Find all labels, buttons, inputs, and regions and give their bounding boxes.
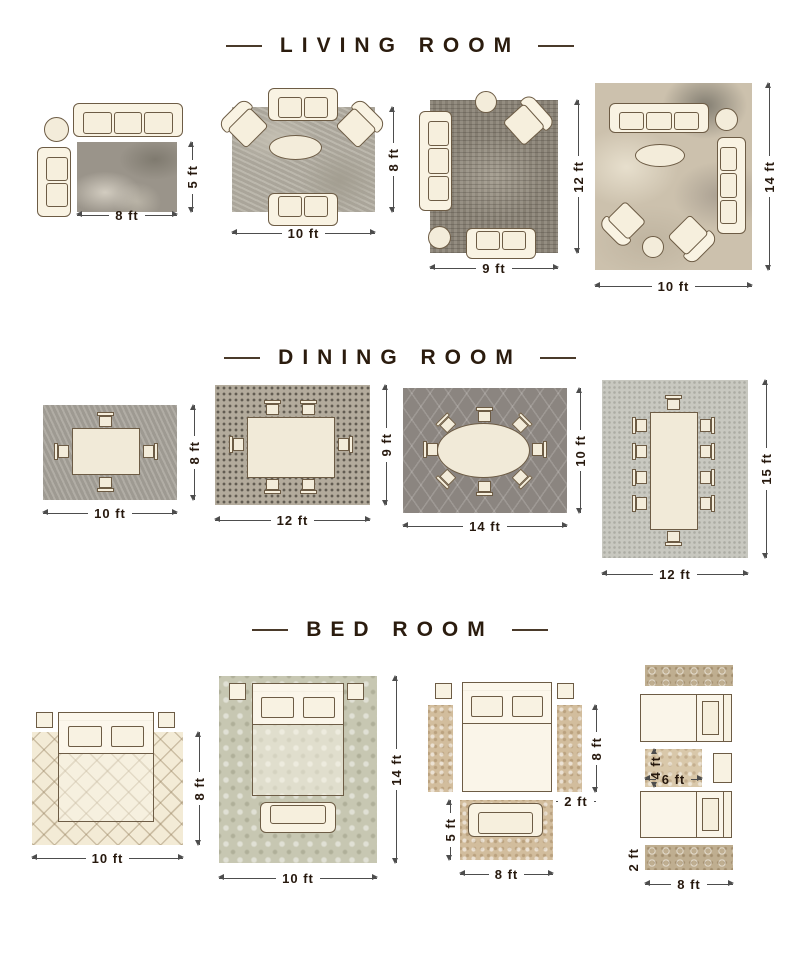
- dining-layout-14x10: 14 ft 10 ft: [400, 385, 582, 533]
- height-dimension: 14 ft: [388, 676, 404, 863]
- foot-rug-height-label: 5 ft: [443, 813, 458, 847]
- round-side-table: [428, 226, 451, 249]
- runner-height-dimension: 2 ft: [625, 843, 641, 872]
- width-dimension: 10 ft: [232, 225, 375, 241]
- bed-side-label: 8 ft: [589, 732, 604, 766]
- section-title-living-room: LIVING ROOM: [0, 34, 800, 58]
- width-dimension: 10 ft: [43, 505, 177, 521]
- mid-rug-width-label: 6 ft: [656, 772, 692, 787]
- dining-chair: [143, 443, 158, 460]
- section-title-dining-room: DINING ROOM: [0, 346, 800, 370]
- living-layout-9x12: 9 ft 12 ft: [418, 88, 586, 288]
- sofa: [609, 103, 709, 133]
- dining-table: [650, 412, 698, 530]
- loveseat: [37, 147, 71, 217]
- dining-layout-12x9: 12 ft 9 ft: [215, 383, 387, 531]
- foot-rug-width-label: 8 ft: [489, 867, 525, 882]
- dining-table: [247, 417, 335, 478]
- width-label: 12 ft: [271, 513, 315, 528]
- height-dimension: 9 ft: [378, 385, 394, 505]
- dining-table: [72, 428, 140, 475]
- dining-layout-10x8: 10 ft 8 ft: [40, 398, 198, 520]
- dining-chair: [300, 400, 317, 415]
- title-dash-right: [540, 357, 576, 359]
- oval-coffee-table: [635, 144, 685, 167]
- section-title-text: LIVING ROOM: [280, 34, 520, 58]
- dining-chair: [665, 395, 682, 410]
- height-label: 15 ft: [759, 448, 774, 490]
- width-label: 10 ft: [276, 871, 320, 886]
- width-label: 10 ft: [652, 279, 696, 294]
- height-label: 14 ft: [389, 749, 404, 791]
- bed-layout-twin-beds: 4 ft 6 ft 2 ft 8 ft: [625, 660, 800, 895]
- dining-layout-12x15: 12 ft 15 ft: [598, 378, 776, 590]
- height-dimension: 14 ft: [761, 83, 777, 270]
- foot-rug-height-dimension: 5 ft: [442, 800, 458, 860]
- foot-rug-width-dimension: 8 ft: [460, 866, 553, 882]
- living-layout-8x5: 8 ft 5 ft: [28, 95, 208, 237]
- dining-chair: [264, 400, 281, 415]
- width-dimension: 14 ft: [403, 518, 567, 534]
- dining-chair: [632, 469, 647, 486]
- dining-chair: [632, 495, 647, 512]
- bed: [252, 683, 344, 796]
- runner-width-label: 8 ft: [671, 877, 707, 892]
- rug-size-guide: LIVING ROOM 8 ft 5 ft 10 ft: [0, 0, 800, 978]
- width-dimension: 12 ft: [602, 566, 748, 582]
- oval-dining-table: [437, 423, 530, 478]
- width-dimension: 12 ft: [215, 512, 370, 528]
- round-side-table: [475, 91, 497, 113]
- dining-chair: [423, 441, 438, 458]
- runner-rug: [557, 705, 582, 792]
- nightstand: [713, 753, 732, 783]
- dining-chair: [264, 479, 281, 494]
- title-dash-right: [538, 45, 574, 47]
- height-label: 9 ft: [379, 428, 394, 462]
- section-title-text: BED ROOM: [306, 618, 494, 642]
- dining-chair: [97, 477, 114, 492]
- twin-bed: [640, 791, 732, 838]
- dining-chair: [97, 412, 114, 427]
- sofa: [419, 111, 452, 211]
- nightstand: [435, 683, 452, 699]
- width-dimension: 10 ft: [219, 870, 377, 886]
- dining-chair: [632, 443, 647, 460]
- title-dash-right: [512, 629, 548, 631]
- bed: [58, 712, 154, 822]
- dining-chair: [700, 443, 715, 460]
- runner-height-label: 2 ft: [626, 843, 641, 877]
- dining-chair: [700, 417, 715, 434]
- width-label: 10 ft: [88, 506, 132, 521]
- dining-chair: [700, 495, 715, 512]
- width-label: 14 ft: [463, 519, 507, 534]
- living-layout-10x8: 10 ft 8 ft: [215, 85, 400, 247]
- runner-rug: [645, 845, 733, 870]
- title-dash-left: [252, 629, 288, 631]
- width-label: 8 ft: [109, 208, 145, 223]
- height-dimension: 8 ft: [385, 107, 401, 212]
- runner-width-label: 2 ft: [558, 794, 594, 809]
- runner-rug: [645, 665, 733, 686]
- dining-chair: [338, 436, 353, 453]
- dining-chair: [476, 407, 493, 422]
- sofa: [268, 88, 338, 121]
- nightstand: [158, 712, 175, 728]
- runner-rug: [428, 705, 453, 792]
- round-side-table: [715, 108, 738, 131]
- dining-chair: [300, 479, 317, 494]
- height-dimension: 8 ft: [191, 732, 207, 845]
- height-label: 8 ft: [187, 436, 202, 470]
- dining-chair: [665, 531, 682, 546]
- dining-chair: [229, 436, 244, 453]
- bed-side-dimension: 8 ft: [588, 705, 604, 792]
- runner-width-dimension: 2 ft: [556, 793, 596, 809]
- living-layout-10x14: 10 ft 14 ft: [593, 68, 775, 300]
- loveseat: [466, 228, 536, 259]
- width-label: 12 ft: [653, 567, 697, 582]
- bed-layout-runners: 8 ft 2 ft 5 ft 8 ft: [428, 672, 606, 884]
- height-dimension: 12 ft: [570, 100, 586, 253]
- nightstand: [557, 683, 574, 699]
- height-dimension: 10 ft: [572, 388, 588, 513]
- height-dimension: 8 ft: [186, 405, 202, 500]
- sofa: [268, 193, 338, 226]
- mid-rug-width-dimension: 6 ft: [645, 771, 702, 787]
- round-side-table: [642, 236, 664, 258]
- section-title-text: DINING ROOM: [278, 346, 522, 370]
- height-label: 5 ft: [185, 160, 200, 194]
- height-dimension: 15 ft: [758, 380, 774, 558]
- height-label: 14 ft: [762, 156, 777, 198]
- width-dimension: 10 ft: [595, 278, 752, 294]
- width-dimension: 10 ft: [32, 850, 183, 866]
- width-label: 9 ft: [476, 261, 512, 276]
- bed: [462, 682, 552, 792]
- bed-layout-10x14: 10 ft 14 ft: [210, 670, 402, 898]
- height-dimension: 5 ft: [184, 142, 200, 212]
- width-dimension: 8 ft: [77, 207, 177, 223]
- title-dash-left: [224, 357, 260, 359]
- dining-chair: [54, 443, 69, 460]
- width-dimension: 9 ft: [430, 260, 558, 276]
- nightstand: [347, 683, 364, 700]
- dining-chair: [476, 481, 493, 496]
- dining-chair: [632, 417, 647, 434]
- bed-end-sofa: [468, 803, 543, 837]
- height-label: 8 ft: [386, 143, 401, 177]
- sofa: [73, 103, 183, 137]
- sofa: [717, 137, 746, 234]
- dining-chair: [700, 469, 715, 486]
- section-title-bed-room: BED ROOM: [0, 618, 800, 642]
- rug: [77, 142, 177, 212]
- height-label: 10 ft: [573, 430, 588, 472]
- dining-chair: [532, 441, 547, 458]
- runner-width-dimension: 8 ft: [645, 876, 733, 892]
- width-label: 10 ft: [282, 226, 326, 241]
- nightstand: [229, 683, 246, 700]
- width-label: 10 ft: [86, 851, 130, 866]
- oval-coffee-table: [269, 135, 322, 160]
- nightstand: [36, 712, 53, 728]
- height-label: 8 ft: [192, 772, 207, 806]
- twin-bed: [640, 694, 732, 742]
- height-label: 12 ft: [571, 156, 586, 198]
- bed-end-bench: [260, 802, 336, 833]
- title-dash-left: [226, 45, 262, 47]
- bed-layout-10x8: 10 ft 8 ft: [25, 700, 207, 865]
- round-side-table: [44, 117, 69, 142]
